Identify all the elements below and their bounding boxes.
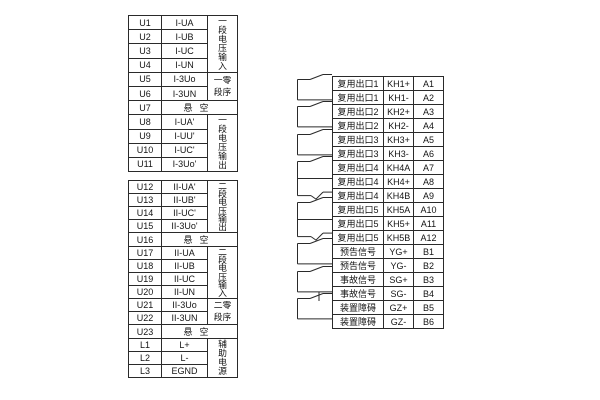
relay-contact-symbol-changeover	[297, 161, 332, 196]
wiring-diagram: U1I-UA一段电压输入U2I-UBU3I-UCU4I-UNU5I-3Uo一零段…	[0, 0, 600, 400]
pin-cell: B4	[414, 287, 444, 301]
terminal-table-voltage-terminals-section-1: U1I-UA一段电压输入U2I-UBU3I-UCU4I-UNU5I-3Uo一零段…	[128, 15, 238, 172]
signal-cell: I-UN	[162, 58, 208, 72]
signal-cell: II-UB'	[162, 194, 208, 207]
relay-contact-symbol-changeover	[297, 202, 332, 237]
relay-contact-symbol-nc	[297, 298, 332, 319]
output-name-cell: 事故信号	[333, 273, 384, 287]
terminal-id-cell: U5	[129, 72, 162, 86]
pin-cell: A8	[414, 175, 444, 189]
signal-cell: EGND	[162, 365, 208, 378]
pin-cell: B6	[414, 315, 444, 329]
signal-cell: 悬空	[162, 101, 238, 115]
output-name-cell: 复用出口4	[333, 189, 384, 203]
table-row: 复用出口1KH1-A2	[333, 91, 444, 105]
terminal-id-cell: L1	[129, 339, 162, 352]
signal-cell: II-UA	[162, 247, 208, 260]
table-row: 复用出口1KH1+A1	[333, 77, 444, 91]
signal-cell: I-UC	[162, 44, 208, 58]
terminal-id-cell: L2	[129, 352, 162, 365]
output-name-cell: 事故信号	[333, 287, 384, 301]
terminal-id-cell: U17	[129, 247, 162, 260]
output-name-cell: 复用出口3	[333, 133, 384, 147]
output-name-cell: 复用出口3	[333, 147, 384, 161]
relay-contact-symbol-no	[297, 134, 332, 155]
table-row: 复用出口3KH3+A5	[333, 133, 444, 147]
terminal-label-cell: KH4A	[384, 161, 414, 175]
terminal-label-cell: KH4B	[384, 189, 414, 203]
terminal-table-voltage-terminals-section-2: U12II-UA'二段电压输出U13II-UB'U14II-UC'U15II-3…	[128, 180, 238, 378]
signal-cell: I-UA'	[162, 115, 208, 129]
signal-cell: 悬空	[162, 233, 238, 247]
terminal-id-cell: U15	[129, 220, 162, 233]
relay-contact-symbol-no	[297, 243, 332, 264]
terminal-id-cell: U14	[129, 207, 162, 220]
relay-contact-symbol-no	[297, 79, 332, 100]
terminal-id-cell: U18	[129, 260, 162, 273]
terminal-id-cell: U6	[129, 86, 162, 100]
group-label-cell: 二零段序	[208, 299, 238, 325]
terminal-label-cell: YG+	[384, 245, 414, 259]
signal-cell: II-3Uo'	[162, 220, 208, 233]
output-name-cell: 复用出口5	[333, 217, 384, 231]
table-row: 复用出口2KH2+A3	[333, 105, 444, 119]
group-label-cell: 一零段序	[208, 72, 238, 100]
pin-cell: A4	[414, 119, 444, 133]
pin-cell: A3	[414, 105, 444, 119]
group-label-cell: 二段电压输入	[208, 247, 238, 299]
group-label-text: 二段电压输入	[218, 248, 228, 297]
terminal-label-cell: KH4+	[384, 175, 414, 189]
group-label-text: 一零段序	[213, 74, 232, 99]
output-name-cell: 复用出口4	[333, 175, 384, 189]
signal-cell: L-	[162, 352, 208, 365]
terminal-id-cell: U16	[129, 233, 162, 247]
relay-contact-symbol-no	[297, 271, 332, 292]
relay-contact-symbol-no	[297, 106, 332, 127]
pin-cell: A10	[414, 203, 444, 217]
table-row: U8I-UA'一段电压输出	[129, 115, 238, 129]
terminal-label-cell: KH2-	[384, 119, 414, 133]
output-name-cell: 复用出口2	[333, 119, 384, 133]
group-label-text: 一段电压输出	[218, 116, 228, 170]
signal-cell: I-UB	[162, 30, 208, 44]
signal-cell: II-3UN	[162, 312, 208, 325]
table-row: 预告信号YG-B2	[333, 259, 444, 273]
signal-cell: II-3Uo	[162, 299, 208, 312]
pin-cell: B5	[414, 301, 444, 315]
terminal-label-cell: SG-	[384, 287, 414, 301]
table-row: 复用出口2KH2-A4	[333, 119, 444, 133]
table-row: 复用出口5KH5AA10	[333, 203, 444, 217]
output-name-cell: 复用出口2	[333, 105, 384, 119]
pin-cell: B1	[414, 245, 444, 259]
table-row: U5I-3Uo一零段序	[129, 72, 238, 86]
table-row: L1L+辅助电源	[129, 339, 238, 352]
terminal-label-cell: GZ-	[384, 315, 414, 329]
signal-cell: II-UB	[162, 260, 208, 273]
table-row: 事故信号SG+B3	[333, 273, 444, 287]
table-row: U16悬空	[129, 233, 238, 247]
table-row: U7悬空	[129, 101, 238, 115]
terminal-label-cell: KH5B	[384, 231, 414, 245]
signal-cell: II-UA'	[162, 181, 208, 194]
table-row: U23悬空	[129, 325, 238, 339]
terminal-label-cell: KH2+	[384, 105, 414, 119]
table-row: 复用出口5KH5+A11	[333, 217, 444, 231]
signal-cell: 悬空	[162, 325, 238, 339]
signal-cell: II-UN	[162, 286, 208, 299]
output-name-cell: 复用出口1	[333, 77, 384, 91]
group-label-cell: 一段电压输入	[208, 16, 238, 73]
terminal-id-cell: L3	[129, 365, 162, 378]
terminal-id-cell: U10	[129, 143, 162, 157]
output-name-cell: 复用出口5	[333, 203, 384, 217]
terminal-label-cell: KH3-	[384, 147, 414, 161]
output-name-cell: 预告信号	[333, 245, 384, 259]
terminal-label-cell: SG+	[384, 273, 414, 287]
group-label-text: 辅助电源	[218, 340, 228, 376]
table-row: U17II-UA二段电压输入	[129, 247, 238, 260]
pin-cell: B3	[414, 273, 444, 287]
terminal-label-cell: KH1+	[384, 77, 414, 91]
pin-cell: A11	[414, 217, 444, 231]
group-label-text: 一段电压输入	[218, 17, 228, 71]
pin-cell: B2	[414, 259, 444, 273]
table-row: 事故信号SG-B4	[333, 287, 444, 301]
signal-cell: I-3UN	[162, 86, 208, 100]
group-label-text: 二零段序	[213, 300, 232, 323]
output-name-cell: 预告信号	[333, 259, 384, 273]
table-row: U12II-UA'二段电压输出	[129, 181, 238, 194]
table-row: 装置障碍GZ+B5	[333, 301, 444, 315]
terminal-id-cell: U23	[129, 325, 162, 339]
table-row: 复用出口4KH4+A8	[333, 175, 444, 189]
signal-cell: I-UC'	[162, 143, 208, 157]
terminal-id-cell: U19	[129, 273, 162, 286]
table-row: 复用出口3KH3-A6	[333, 147, 444, 161]
terminal-id-cell: U9	[129, 129, 162, 143]
signal-cell: II-UC'	[162, 207, 208, 220]
table-row: U1I-UA一段电压输入	[129, 16, 238, 30]
group-label-cell: 二段电压输出	[208, 181, 238, 233]
output-name-cell: 复用出口5	[333, 231, 384, 245]
terminal-id-cell: U22	[129, 312, 162, 325]
output-name-cell: 复用出口1	[333, 91, 384, 105]
pin-cell: A5	[414, 133, 444, 147]
terminal-id-cell: U12	[129, 181, 162, 194]
group-label-text: 二段电压输出	[218, 182, 228, 231]
terminal-id-cell: U21	[129, 299, 162, 312]
group-label-cell: 一段电压输出	[208, 115, 238, 172]
pin-cell: A7	[414, 161, 444, 175]
table-row: 复用出口4KH4BA9	[333, 189, 444, 203]
terminal-id-cell: U8	[129, 115, 162, 129]
pin-cell: A1	[414, 77, 444, 91]
terminal-id-cell: U11	[129, 157, 162, 171]
group-label-cell: 辅助电源	[208, 339, 238, 378]
output-name-cell: 装置障碍	[333, 301, 384, 315]
terminal-id-cell: U2	[129, 30, 162, 44]
signal-cell: II-UC	[162, 273, 208, 286]
terminal-id-cell: U20	[129, 286, 162, 299]
terminal-label-cell: GZ+	[384, 301, 414, 315]
terminal-label-cell: YG-	[384, 259, 414, 273]
terminal-id-cell: U3	[129, 44, 162, 58]
terminal-label-cell: KH3+	[384, 133, 414, 147]
output-terminal-table: 复用出口1KH1+A1复用出口1KH1-A2复用出口2KH2+A3复用出口2KH…	[332, 76, 444, 329]
terminal-label-cell: KH5A	[384, 203, 414, 217]
signal-cell: I-UU'	[162, 129, 208, 143]
pin-cell: A2	[414, 91, 444, 105]
signal-cell: L+	[162, 339, 208, 352]
output-name-cell: 复用出口4	[333, 161, 384, 175]
pin-cell: A6	[414, 147, 444, 161]
table-row: 预告信号YG+B1	[333, 245, 444, 259]
terminal-id-cell: U7	[129, 101, 162, 115]
pin-cell: A9	[414, 189, 444, 203]
terminal-label-cell: KH5+	[384, 217, 414, 231]
table-row: 装置障碍GZ-B6	[333, 315, 444, 329]
signal-cell: I-UA	[162, 16, 208, 30]
terminal-id-cell: U1	[129, 16, 162, 30]
table-row: U21II-3Uo二零段序	[129, 299, 238, 312]
terminal-id-cell: U13	[129, 194, 162, 207]
terminal-label-cell: KH1-	[384, 91, 414, 105]
terminal-id-cell: U4	[129, 58, 162, 72]
table-row: 复用出口5KH5BA12	[333, 231, 444, 245]
table-row: 复用出口4KH4AA7	[333, 161, 444, 175]
signal-cell: I-3Uo'	[162, 157, 208, 171]
signal-cell: I-3Uo	[162, 72, 208, 86]
pin-cell: A12	[414, 231, 444, 245]
output-name-cell: 装置障碍	[333, 315, 384, 329]
